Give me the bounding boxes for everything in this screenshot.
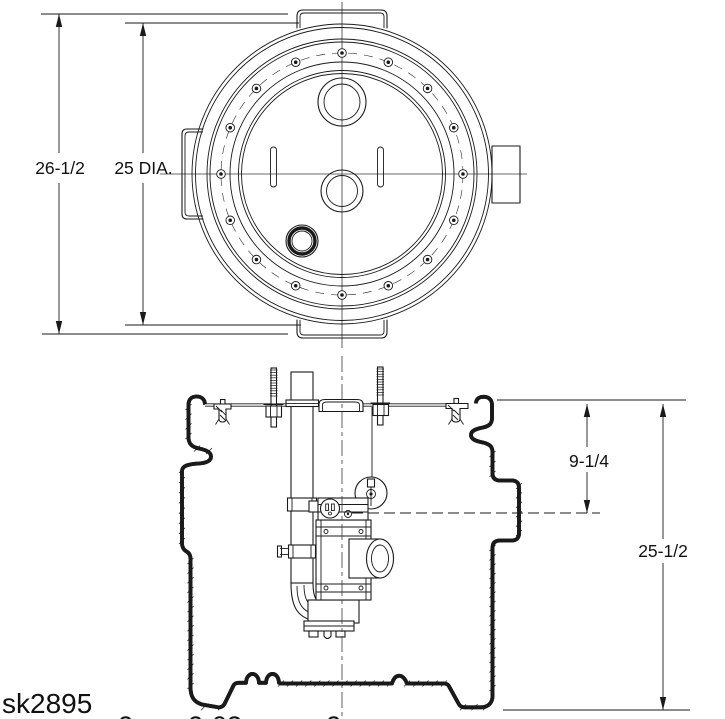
cover-clamp-left xyxy=(214,400,231,425)
basin-depth-label: 25-1/2 xyxy=(638,541,688,561)
inlet-depth-label: 9-1/4 xyxy=(569,451,609,471)
pump-foot-right xyxy=(336,631,345,637)
cord-plug-face xyxy=(321,499,340,518)
handle-slot-left xyxy=(271,147,277,187)
sheet-code: sk2895 xyxy=(2,688,92,719)
access-hatch-cover xyxy=(319,400,363,412)
pump-volute xyxy=(308,600,359,623)
pump-bottom-nub xyxy=(324,631,331,639)
grommet-hole xyxy=(286,225,318,257)
pipe-clamp-band xyxy=(278,545,316,558)
spec-drawing-sheet: 26-1/2 25 DIA. xyxy=(0,0,725,719)
side-view-dimensions: 9-1/4 25-1/2 xyxy=(497,400,690,710)
diameter-label: 25 DIA. xyxy=(114,158,172,178)
svg-text:2-03: 2-03 xyxy=(188,711,242,719)
overall-height-label: 26-1/2 xyxy=(35,158,85,178)
svg-text:2: 2 xyxy=(118,711,133,719)
float-switch-barrel xyxy=(349,539,394,578)
technical-drawing: 26-1/2 25 DIA. xyxy=(0,0,725,719)
svg-text:2: 2 xyxy=(326,711,341,719)
cover-clamp-right xyxy=(446,399,468,425)
side-section-view xyxy=(179,356,600,716)
anchor-rod-right xyxy=(371,367,391,425)
pump-foot-left xyxy=(309,631,318,637)
top-view-basin-cover xyxy=(160,2,527,348)
anchor-rod-left xyxy=(264,368,284,427)
footer-partial-text: 2 2-03 2 xyxy=(118,711,341,719)
handle-slot-right xyxy=(378,147,384,187)
right-inlet-hub xyxy=(492,146,520,203)
